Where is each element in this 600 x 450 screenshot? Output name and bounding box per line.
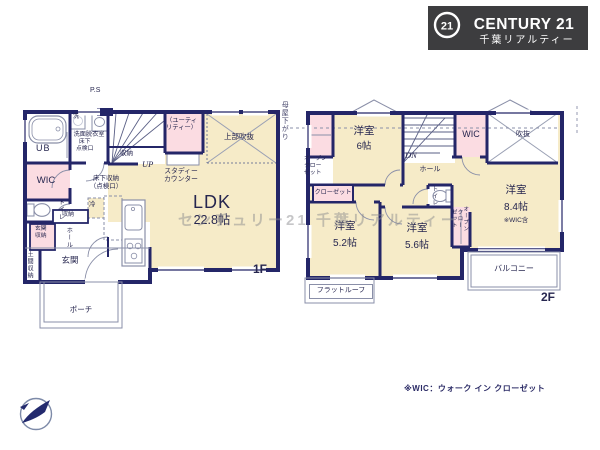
floorplan-page: 21 CENTURY 21 千葉リアルティー P.S UB 洗 洗面脱衣室 床下…	[0, 0, 600, 450]
compass-icon	[20, 399, 52, 430]
label-flat-roof: フラットルーフ	[317, 287, 366, 295]
toilet-1f-icon	[27, 204, 50, 217]
porch-outline	[40, 282, 122, 328]
floorplan-graphics: 21 CENTURY 21 千葉リアルティー	[0, 0, 600, 450]
kitchen-icon	[122, 200, 145, 266]
logo-company: 千葉リアルティー	[479, 33, 574, 46]
balcony-outline	[468, 252, 560, 290]
flat-roof-label-box: フラットルーフ	[309, 284, 373, 299]
floorplan-1f	[22, 108, 279, 328]
century21-logo: 21 CENTURY 21 千葉リアルティー	[428, 6, 588, 50]
bathtub-icon	[29, 116, 66, 143]
toilet-2f-icon	[433, 190, 452, 202]
c21-badge-number: 21	[441, 21, 453, 33]
logo-brand: CENTURY 21	[474, 16, 575, 33]
floorplan-2f	[290, 100, 577, 303]
